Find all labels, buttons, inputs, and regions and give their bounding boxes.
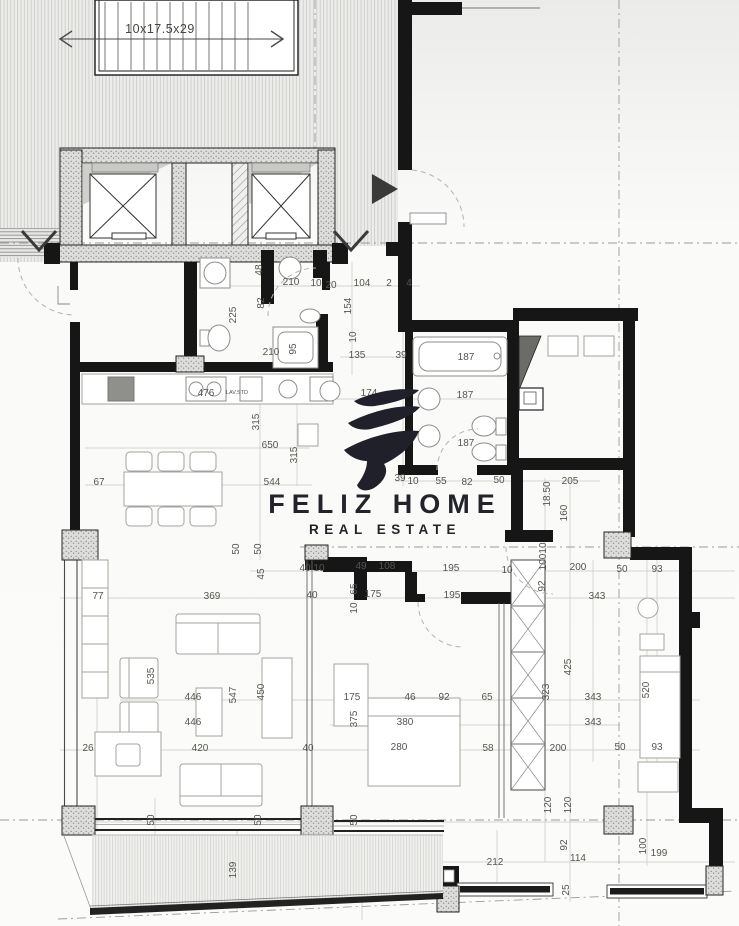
toilet-icon — [200, 325, 230, 351]
sink-icon — [418, 388, 440, 410]
dimension-label: 45 — [256, 568, 267, 580]
elevator-door — [252, 163, 310, 172]
dimension-label: 114 — [570, 853, 586, 864]
dimension-label: 120 — [543, 796, 554, 813]
dimension-label: 82 — [461, 477, 473, 488]
dimension-label: 10 — [349, 602, 360, 614]
elevator-door — [92, 163, 158, 172]
dimension-label: 446 — [185, 717, 202, 728]
dimension-label: 18.50 — [542, 481, 553, 506]
dimension-label: 46 — [404, 692, 416, 703]
dimension-label: 343 — [585, 692, 602, 703]
dimension-label: 50 — [253, 814, 264, 826]
dimension-label: 199 — [651, 848, 668, 859]
bath2-door-arc — [437, 429, 478, 470]
dimension-label: 93 — [651, 564, 663, 575]
dimension-label: 20 — [325, 280, 337, 291]
dimension-label: 10 — [313, 563, 325, 574]
logo-tagline: REAL ESTATE — [309, 522, 461, 537]
dimension-label: 39 — [394, 473, 406, 484]
dimension-label: 650 — [262, 440, 279, 451]
hall-cabinet — [298, 424, 318, 446]
dimension-label: 50 — [231, 543, 242, 555]
dimension-label: 535 — [146, 667, 157, 684]
dimension-label: 93 — [651, 742, 663, 753]
dimension-label: 175 — [344, 692, 361, 703]
elevator-car-icon — [90, 174, 310, 239]
floor-plan-canvas: 10x17.5x29210102010424488222515410135392… — [0, 0, 739, 926]
dimension-label: 446 — [185, 692, 202, 703]
dimension-label: 187 — [457, 390, 474, 401]
logo: FELIZ HOME REAL ESTATE — [268, 389, 502, 537]
dimension-label: 25 — [561, 884, 572, 896]
dimension-label: 450 — [256, 683, 267, 700]
dimension-label: 10 — [538, 542, 549, 554]
dimension-label: 92 — [559, 839, 570, 851]
dimension-label: 100 — [638, 837, 649, 854]
dimension-label: 2 — [386, 278, 392, 289]
dimension-label: 50 — [493, 475, 505, 486]
dimension-label: 154 — [343, 297, 354, 314]
dimension-label: 10 — [407, 476, 419, 487]
dimension-label: 175 — [365, 589, 382, 600]
dimension-label: 200 — [570, 562, 587, 573]
dimension-label: 50 — [616, 564, 628, 575]
dimension-label: 120 — [563, 796, 574, 813]
dimension-label: 77 — [92, 591, 104, 602]
dimension-label: 225 — [228, 306, 239, 323]
sink-icon — [418, 425, 440, 447]
dimension-label: 100 — [538, 553, 549, 570]
wardrobe — [511, 560, 545, 790]
bidet-icon — [472, 443, 506, 461]
dimension-label: 48 — [254, 264, 265, 276]
dimension-label: 195 — [443, 563, 460, 574]
hall-fixture — [320, 381, 340, 401]
lobby-door-leaf — [58, 286, 70, 304]
dimension-label: 160 — [559, 504, 570, 521]
middle-room-door-arc — [418, 602, 463, 647]
balcony — [64, 835, 443, 915]
dimension-label: 476 — [198, 388, 215, 399]
dimension-label: 50 — [349, 814, 360, 826]
dimension-label: 4 — [406, 278, 412, 289]
entry-door-leaf — [410, 213, 446, 224]
dimension-label: 10 — [501, 565, 513, 576]
dimension-label: 375 — [349, 710, 360, 727]
dimension-label: 343 — [589, 591, 606, 602]
dimension-label: 420 — [192, 743, 209, 754]
dimension-label: 65 — [349, 583, 360, 595]
dimension-label: 200 — [550, 743, 567, 754]
dimension-label: 50 — [146, 814, 157, 826]
dimension-label: 95 — [288, 343, 299, 355]
dimension-label: 315 — [251, 413, 262, 430]
dimension-label: 195 — [444, 590, 461, 601]
dimension-label: 49 — [355, 561, 367, 572]
logo-brand: FELIZ HOME — [268, 489, 502, 519]
lobby-door-arc — [18, 258, 75, 315]
dimension-label: 40 — [299, 563, 311, 574]
dimension-label: 343 — [585, 717, 602, 728]
dimension-label: 10 — [310, 278, 322, 289]
dimension-label: 187 — [458, 438, 475, 449]
dimension-label: 50 — [253, 543, 264, 555]
closet-shelves — [548, 336, 614, 356]
dimension-label: 135 — [349, 350, 366, 361]
dimension-label: 82 — [256, 297, 267, 309]
dimension-label: 104 — [354, 278, 371, 289]
terrace-rail — [457, 883, 707, 898]
dimension-label: 323 — [541, 683, 552, 700]
sink-icon — [300, 309, 320, 323]
dimension-label: 40 — [306, 590, 318, 601]
washer-icon — [200, 258, 230, 288]
dimension-label: 55 — [435, 476, 447, 487]
dimension-label: 210 — [283, 277, 300, 288]
dimension-label: 108 — [379, 561, 396, 572]
dimension-label: 50 — [614, 742, 626, 753]
dimension-label: 139 — [228, 861, 239, 878]
dimension-label: 520 — [641, 681, 652, 698]
dimension-label: 65 — [481, 692, 493, 703]
dimension-label: 547 — [228, 686, 239, 703]
dimension-label: 10 — [348, 331, 359, 343]
living-room — [82, 560, 292, 806]
dimension-label: 67 — [93, 477, 105, 488]
duct-shaft — [519, 336, 541, 390]
dimension-label: 26 — [82, 743, 94, 754]
dimension-label: 92 — [438, 692, 450, 703]
dimension-label: 92 — [537, 580, 548, 592]
dimension-label: 187 — [458, 352, 475, 363]
south-window — [95, 819, 305, 830]
dimension-label: LAV.STD — [226, 390, 248, 396]
dimension-label: 210 — [263, 347, 280, 358]
dimension-label: 369 — [204, 591, 221, 602]
dimension-label: 280 — [391, 742, 408, 753]
dimension-label: 205 — [562, 476, 579, 487]
dimension-label: 212 — [487, 857, 504, 868]
toilet-icon — [472, 416, 506, 436]
dimension-label: 425 — [563, 658, 574, 675]
dimension-label: 40 — [302, 743, 314, 754]
dimension-label: 544 — [264, 477, 281, 488]
dining-set — [124, 452, 222, 526]
dimension-label: 58 — [482, 743, 494, 754]
dimension-label: 315 — [289, 446, 300, 463]
dimension-label: 380 — [397, 717, 414, 728]
staircase — [60, 0, 298, 75]
dimension-label: 10x17.5x29 — [125, 22, 195, 36]
floor-plan: 10x17.5x29210102010424488222515410135392… — [0, 0, 739, 926]
dimension-label: 39 — [395, 350, 407, 361]
